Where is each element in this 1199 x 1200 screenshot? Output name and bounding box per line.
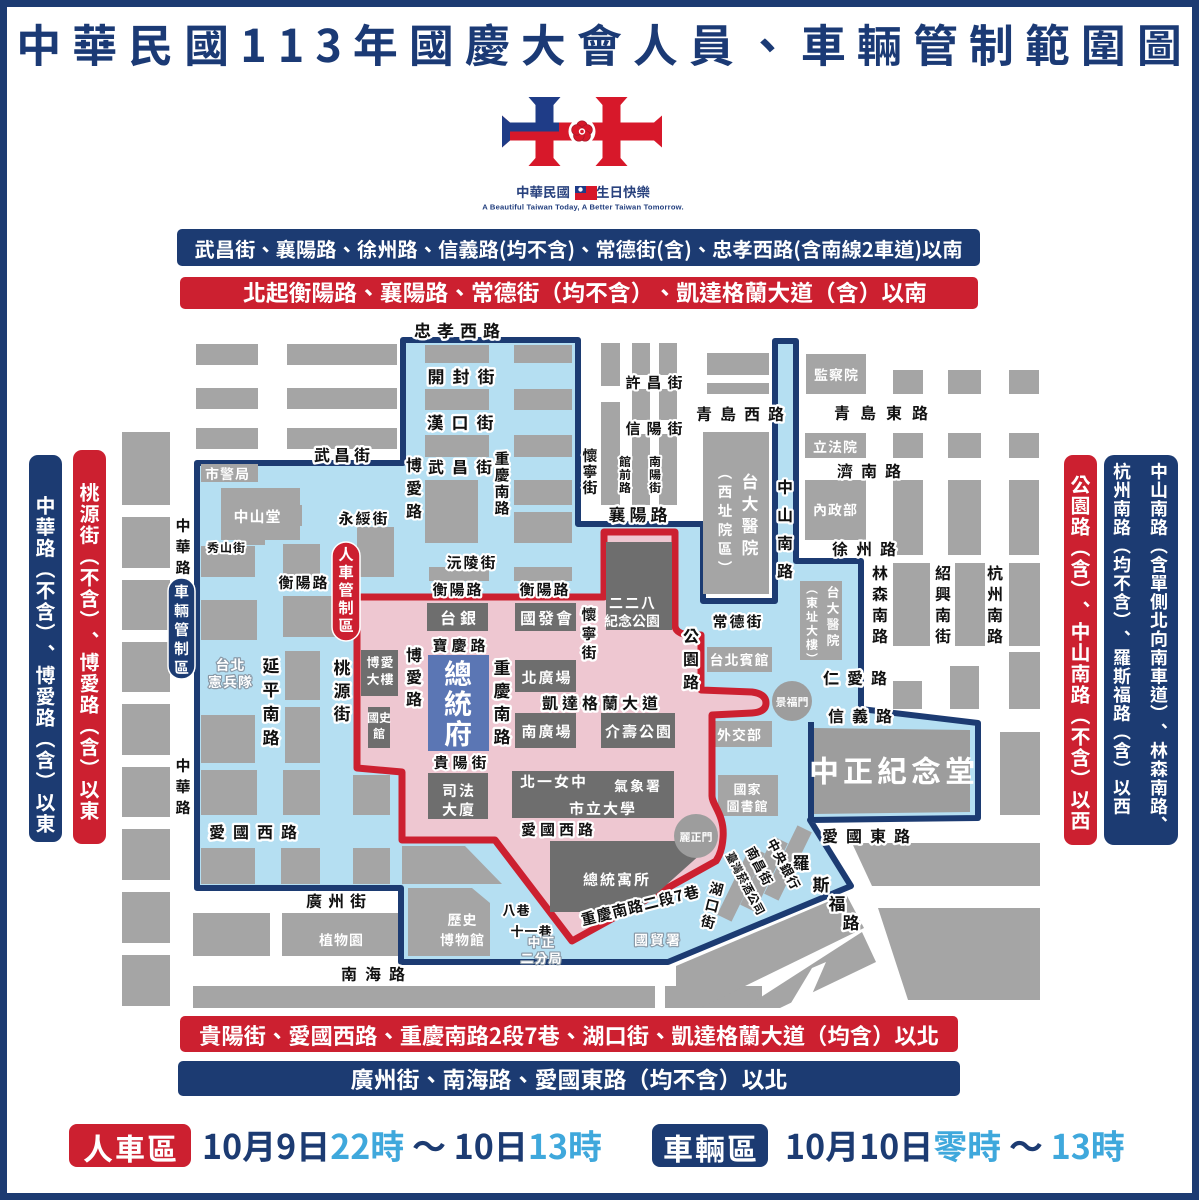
svg-text:A Beautiful Taiwan Today, A Be: A Beautiful Taiwan Today, A Better Taiwa… [482,203,684,212]
